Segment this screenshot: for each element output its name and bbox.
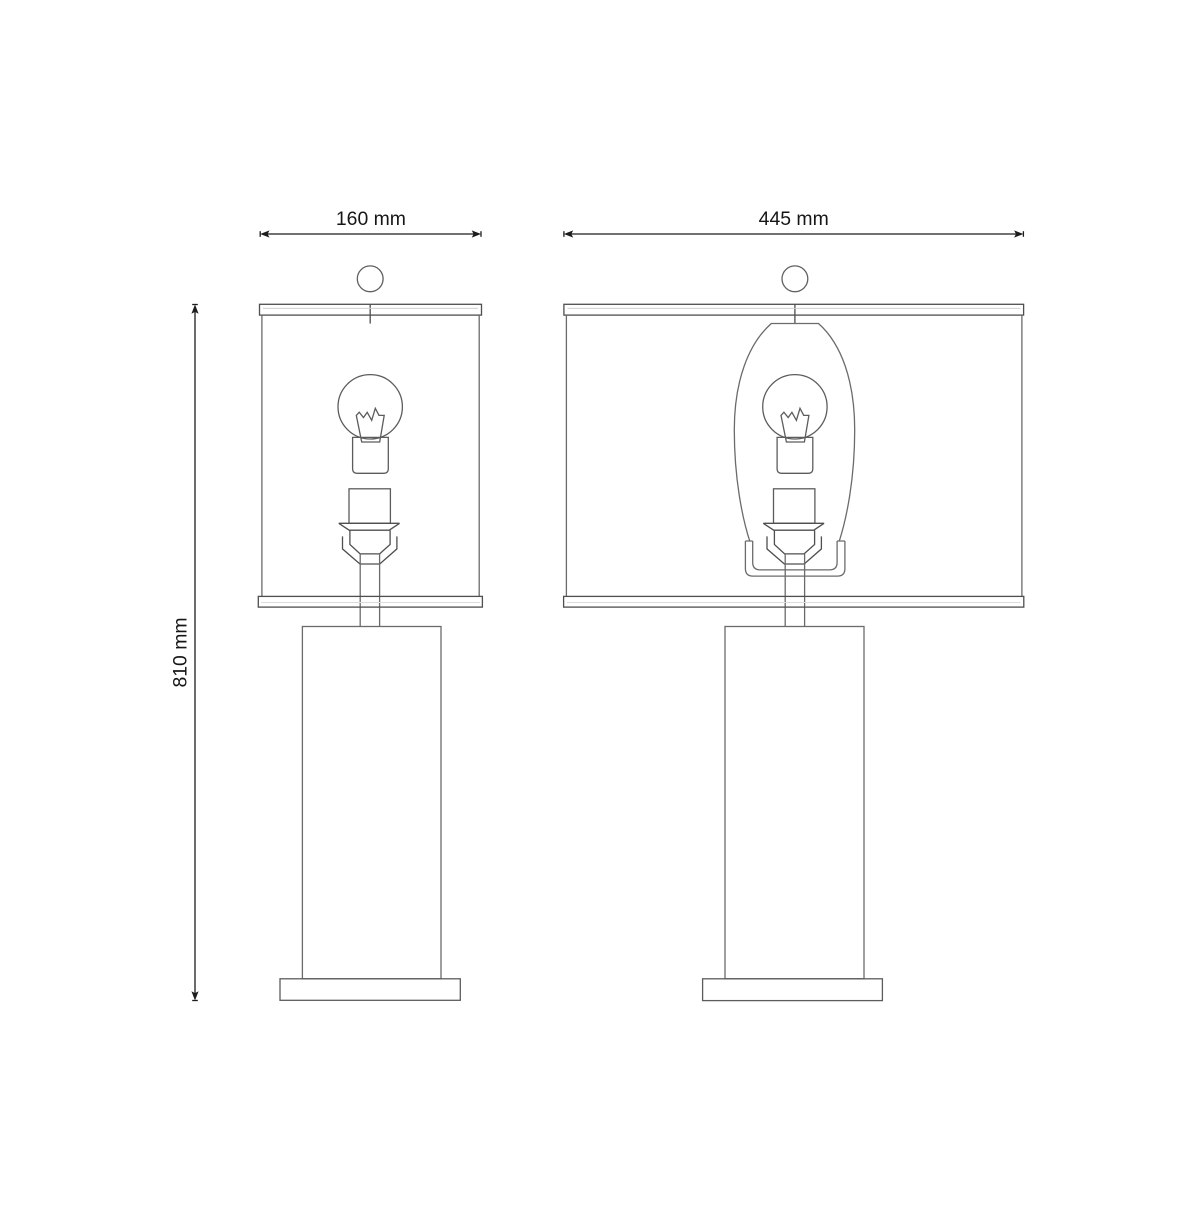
svg-text:160 mm: 160 mm — [336, 208, 406, 230]
svg-text:810 mm: 810 mm — [170, 617, 192, 687]
svg-text:445 mm: 445 mm — [759, 208, 829, 230]
